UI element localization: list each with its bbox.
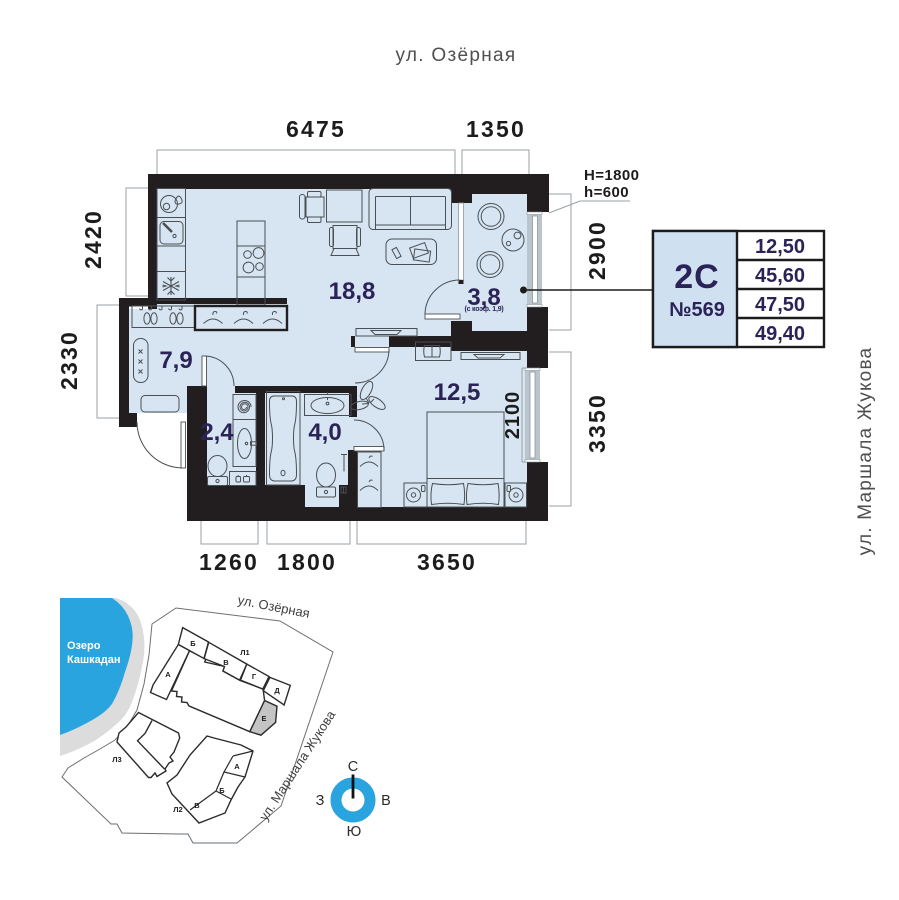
svg-text:7,9: 7,9 <box>159 347 192 374</box>
svg-text:Кашкадан: Кашкадан <box>67 654 121 666</box>
svg-text:Л1: Л1 <box>240 648 249 657</box>
svg-text:№569: №569 <box>669 299 725 321</box>
svg-text:3650: 3650 <box>417 549 477 575</box>
svg-text:С: С <box>348 759 358 775</box>
svg-text:2420: 2420 <box>80 209 106 269</box>
svg-text:2С: 2С <box>674 258 719 296</box>
svg-text:Л3: Л3 <box>112 755 121 764</box>
svg-text:ул. Маршала Жукова: ул. Маршала Жукова <box>855 347 876 556</box>
svg-text:45,60: 45,60 <box>755 265 805 287</box>
svg-text:49,40: 49,40 <box>755 323 805 345</box>
svg-text:h=600: h=600 <box>584 184 629 201</box>
svg-text:4,0: 4,0 <box>308 419 341 446</box>
svg-text:В: В <box>381 793 391 809</box>
svg-text:47,50: 47,50 <box>755 294 805 316</box>
svg-text:12,50: 12,50 <box>755 236 805 258</box>
svg-text:(с коэф. 1,9): (с коэф. 1,9) <box>464 306 503 313</box>
svg-text:Г: Г <box>252 672 257 681</box>
svg-text:Е: Е <box>261 714 266 723</box>
svg-text:В: В <box>194 801 200 810</box>
svg-text:А: А <box>234 762 240 771</box>
svg-text:12,5: 12,5 <box>434 379 481 406</box>
svg-text:H=1800: H=1800 <box>584 167 639 184</box>
svg-text:Б: Б <box>219 786 225 795</box>
svg-text:Озеро: Озеро <box>67 640 101 652</box>
svg-text:1350: 1350 <box>466 116 526 142</box>
svg-text:З: З <box>316 793 325 809</box>
svg-text:А: А <box>165 670 171 679</box>
svg-text:6475: 6475 <box>286 116 346 142</box>
svg-text:Л2: Л2 <box>173 805 182 814</box>
svg-text:В: В <box>223 658 229 667</box>
svg-text:2,4: 2,4 <box>200 419 234 446</box>
svg-text:2330: 2330 <box>56 330 82 390</box>
svg-text:Д: Д <box>274 686 280 695</box>
svg-text:18,8: 18,8 <box>329 278 376 305</box>
svg-text:3350: 3350 <box>584 393 610 453</box>
svg-text:2100: 2100 <box>502 391 524 440</box>
svg-text:ул. Озёрная: ул. Озёрная <box>396 45 517 66</box>
svg-text:1800: 1800 <box>277 549 337 575</box>
svg-text:1260: 1260 <box>199 549 259 575</box>
svg-text:Ю: Ю <box>347 824 362 840</box>
svg-text:Б: Б <box>190 639 196 648</box>
svg-text:2900: 2900 <box>584 220 610 280</box>
